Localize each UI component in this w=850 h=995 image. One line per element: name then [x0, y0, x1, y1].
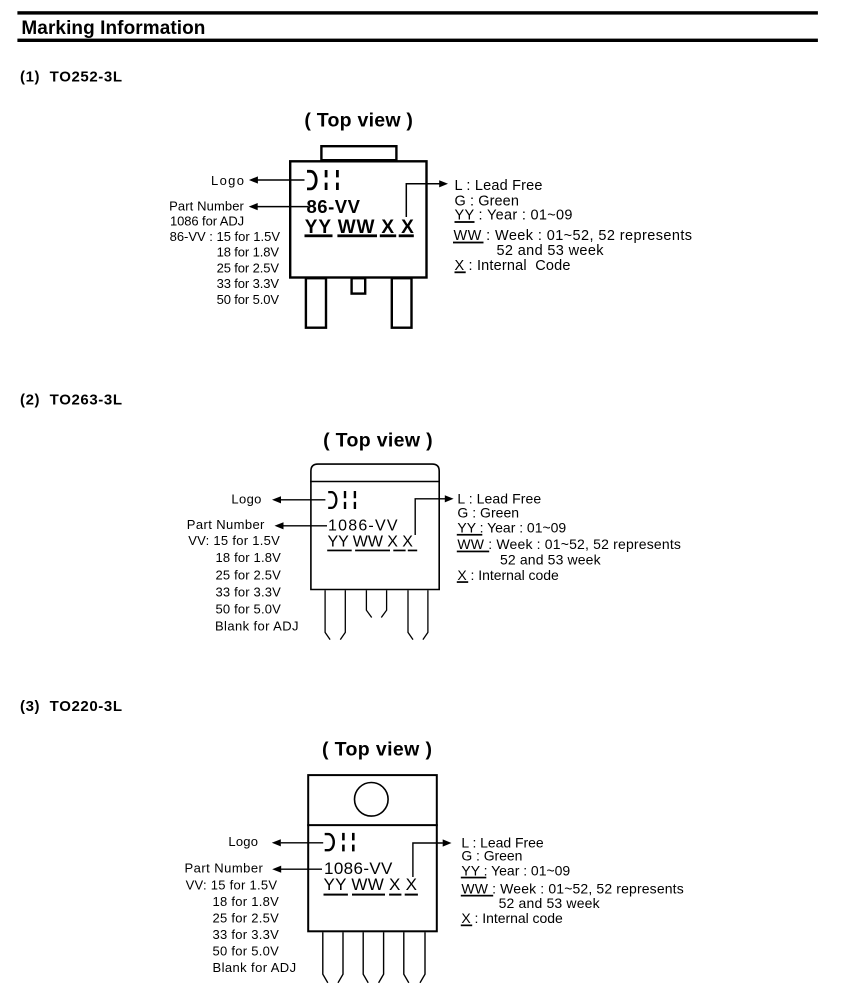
svg-text:(1) TO252-3L: (1) TO252-3L — [20, 69, 122, 86]
svg-text:G : Green: G : Green — [461, 848, 522, 864]
svg-text:(2) TO263-3L: (2) TO263-3L — [20, 391, 122, 408]
svg-text:18 for 1.8V: 18 for 1.8V — [217, 245, 280, 260]
svg-text:18 for 1.8V: 18 for 1.8V — [216, 550, 282, 565]
svg-text:52 and 53 week: 52 and 53 week — [500, 552, 602, 568]
svg-text:L : Lead Free: L : Lead Free — [455, 178, 543, 194]
svg-text:50 for 5.0V: 50 for 5.0V — [213, 944, 280, 959]
svg-text:WW : Week : 01~52, 52 represen: WW : Week : 01~52, 52 represents — [454, 228, 693, 244]
svg-text:86-VV: 86-VV — [307, 196, 361, 217]
svg-text:YY WW X X: YY WW X X — [324, 875, 418, 894]
svg-text:YY WW X X: YY WW X X — [328, 534, 414, 551]
svg-text:X : Internal code: X : Internal code — [457, 567, 559, 583]
svg-text:Part Number: Part Number — [185, 861, 264, 876]
svg-text:Logo: Logo — [228, 834, 258, 849]
svg-text:VV: 15 for 1.5V: VV: 15 for 1.5V — [188, 533, 280, 548]
svg-text:52 and 53 week: 52 and 53 week — [497, 243, 605, 259]
svg-text:33 for 3.3V: 33 for 3.3V — [216, 584, 282, 599]
svg-text:50 for 5.0V: 50 for 5.0V — [217, 292, 280, 307]
svg-text:WW : Week : 01~52, 52 represen: WW : Week : 01~52, 52 represents — [457, 536, 681, 552]
svg-text:YY : Year : 01~09: YY : Year : 01~09 — [461, 862, 570, 878]
svg-text:25 for 2.5V: 25 for 2.5V — [217, 260, 280, 275]
svg-text:25 for 2.5V: 25 for 2.5V — [213, 911, 280, 926]
svg-text:Logo: Logo — [211, 173, 244, 188]
svg-text:X : Internal Code: X : Internal Code — [455, 258, 571, 274]
svg-text:VV: 15 for 1.5V: VV: 15 for 1.5V — [186, 878, 278, 893]
svg-text:Logo: Logo — [231, 492, 261, 507]
svg-text:33 for 3.3V: 33 for 3.3V — [217, 276, 280, 291]
svg-text:1086-VV: 1086-VV — [328, 518, 398, 535]
svg-text:YY : Year : 01~09: YY : Year : 01~09 — [457, 520, 566, 536]
svg-text:86-VV : 15 for 1.5V: 86-VV : 15 for 1.5V — [170, 229, 281, 244]
svg-text:Blank for ADJ: Blank for ADJ — [213, 960, 297, 975]
svg-text:Blank for ADJ: Blank for ADJ — [215, 619, 299, 634]
svg-text:( Top view ): ( Top view ) — [304, 110, 413, 132]
svg-text:( Top view ): ( Top view ) — [323, 429, 433, 451]
svg-text:X : Internal code: X : Internal code — [461, 910, 563, 926]
svg-text:Part Number: Part Number — [187, 517, 265, 532]
svg-text:WW : Week : 01~52, 52 represen: WW : Week : 01~52, 52 represents — [461, 880, 683, 896]
svg-text:18 for 1.8V: 18 for 1.8V — [213, 894, 280, 909]
svg-text:G : Green: G : Green — [457, 504, 519, 520]
svg-text:33 for 3.3V: 33 for 3.3V — [213, 927, 280, 942]
svg-text:(3) TO220-3L: (3) TO220-3L — [20, 698, 122, 715]
svg-text:52 and 53 week: 52 and 53 week — [499, 895, 601, 911]
svg-text:Part Number: Part Number — [169, 199, 244, 214]
svg-text:Marking Information: Marking Information — [21, 18, 205, 39]
svg-text:25 for 2.5V: 25 for 2.5V — [216, 567, 282, 582]
svg-text:1086 for ADJ: 1086 for ADJ — [170, 214, 244, 229]
svg-text:( Top view ): ( Top view ) — [322, 739, 432, 761]
svg-text:50 for 5.0V: 50 for 5.0V — [216, 602, 282, 617]
